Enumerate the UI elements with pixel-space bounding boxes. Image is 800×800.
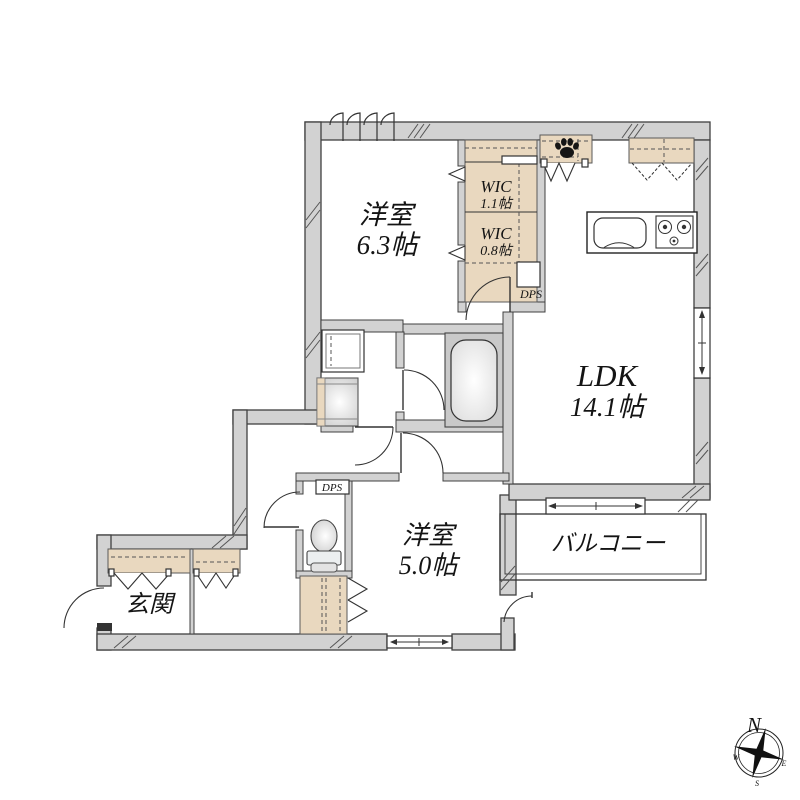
dps-upper-label: DPS <box>519 287 542 301</box>
cabinet-hinge-1 <box>109 569 114 576</box>
stove-burner-left-center <box>663 225 667 229</box>
door-arc-toilet <box>264 492 300 528</box>
wall-balcony-step <box>501 618 514 650</box>
top-right-closet-bifold <box>632 163 692 180</box>
door-arc-washroom <box>355 427 393 465</box>
door-arc-bathroom <box>404 370 444 410</box>
bathtub <box>451 340 497 421</box>
wall-wic-left-c <box>458 261 465 302</box>
wall-top <box>305 122 710 140</box>
bedroom2-closet <box>300 576 347 634</box>
wall-wic-left-b <box>458 182 465 245</box>
floorplan-drawing: 洋室 6.3帖 WIC 1.1帖 WIC 0.8帖 DPS LDK 14.1帖 … <box>0 0 800 800</box>
wic-small-size-label: 0.8帖 <box>480 243 514 259</box>
stove-burner-right-center <box>682 225 686 229</box>
wall-wic-bottom-b <box>510 302 545 312</box>
washing-machine-pan <box>322 330 364 372</box>
stove-burner-small-center <box>673 240 676 243</box>
dps-shaft-box <box>517 262 540 287</box>
wall-wic-bottom-a <box>458 302 466 312</box>
compass-north-label: N <box>746 713 762 737</box>
dps-lower-label: DPS <box>321 482 343 494</box>
bedroom2-closet-bifold <box>348 578 367 622</box>
wall-toilet-left-b <box>296 530 303 571</box>
wall-ldk-divider <box>503 312 513 484</box>
floorplan-canvas: 洋室 6.3帖 WIC 1.1帖 WIC 0.8帖 DPS LDK 14.1帖 … <box>0 0 800 800</box>
wic-hanger-pipe <box>502 156 537 164</box>
pet-closet-hinge-right <box>582 159 588 167</box>
ldk-size-label: 14.1帖 <box>570 392 648 422</box>
door-leaf-entrance <box>97 623 112 631</box>
entrance-label: 玄関 <box>125 591 176 618</box>
pet-closet-hinge-left <box>541 159 547 167</box>
toilet-bowl <box>311 520 337 552</box>
shoe-cabinet-left <box>108 549 190 573</box>
wall-wic-left-a <box>458 140 465 166</box>
bedroom1-name-label: 洋室 <box>359 200 417 230</box>
cabinet-hinge-2 <box>166 569 171 576</box>
wic-small-opening-mark <box>449 246 465 260</box>
wic-large-name-label: WIC <box>480 177 512 196</box>
bedroom2-size-label: 5.0帖 <box>399 551 462 580</box>
toilet-base <box>311 563 337 572</box>
compass-east-label: E <box>781 759 787 768</box>
compass: N W E S <box>727 713 791 788</box>
pet-closet-bifold <box>543 163 575 181</box>
door-arc-corridor <box>403 433 443 473</box>
bedroom1-size-label: 6.3帖 <box>357 230 422 260</box>
cabinet-hinge-4 <box>233 569 238 576</box>
wic-large-opening-mark <box>449 167 465 181</box>
wall-mid-left <box>233 410 247 549</box>
compass-west-label: W <box>733 753 741 762</box>
wall-right-lower <box>694 378 710 498</box>
bedroom2-name-label: 洋室 <box>402 521 458 550</box>
wic-large-size-label: 1.1帖 <box>480 196 514 212</box>
wall-wash-bath-a <box>396 332 404 368</box>
balcony-label: バルコニー <box>551 531 667 556</box>
door-arc-entrance <box>64 588 104 628</box>
top-right-closet <box>629 138 694 163</box>
wall-corridor-bottom-b <box>443 473 509 481</box>
kitchen-sink <box>594 218 646 248</box>
cabinet-hinge-3 <box>194 569 199 576</box>
shoe-cabinet-right-bifold <box>196 573 236 588</box>
shoe-cabinet-left-bifold <box>114 573 170 589</box>
compass-south-label: S <box>755 779 759 788</box>
wic-small-name-label: WIC <box>480 224 512 243</box>
wall-toilet-right <box>345 481 352 578</box>
ldk-name-label: LDK <box>576 358 640 393</box>
